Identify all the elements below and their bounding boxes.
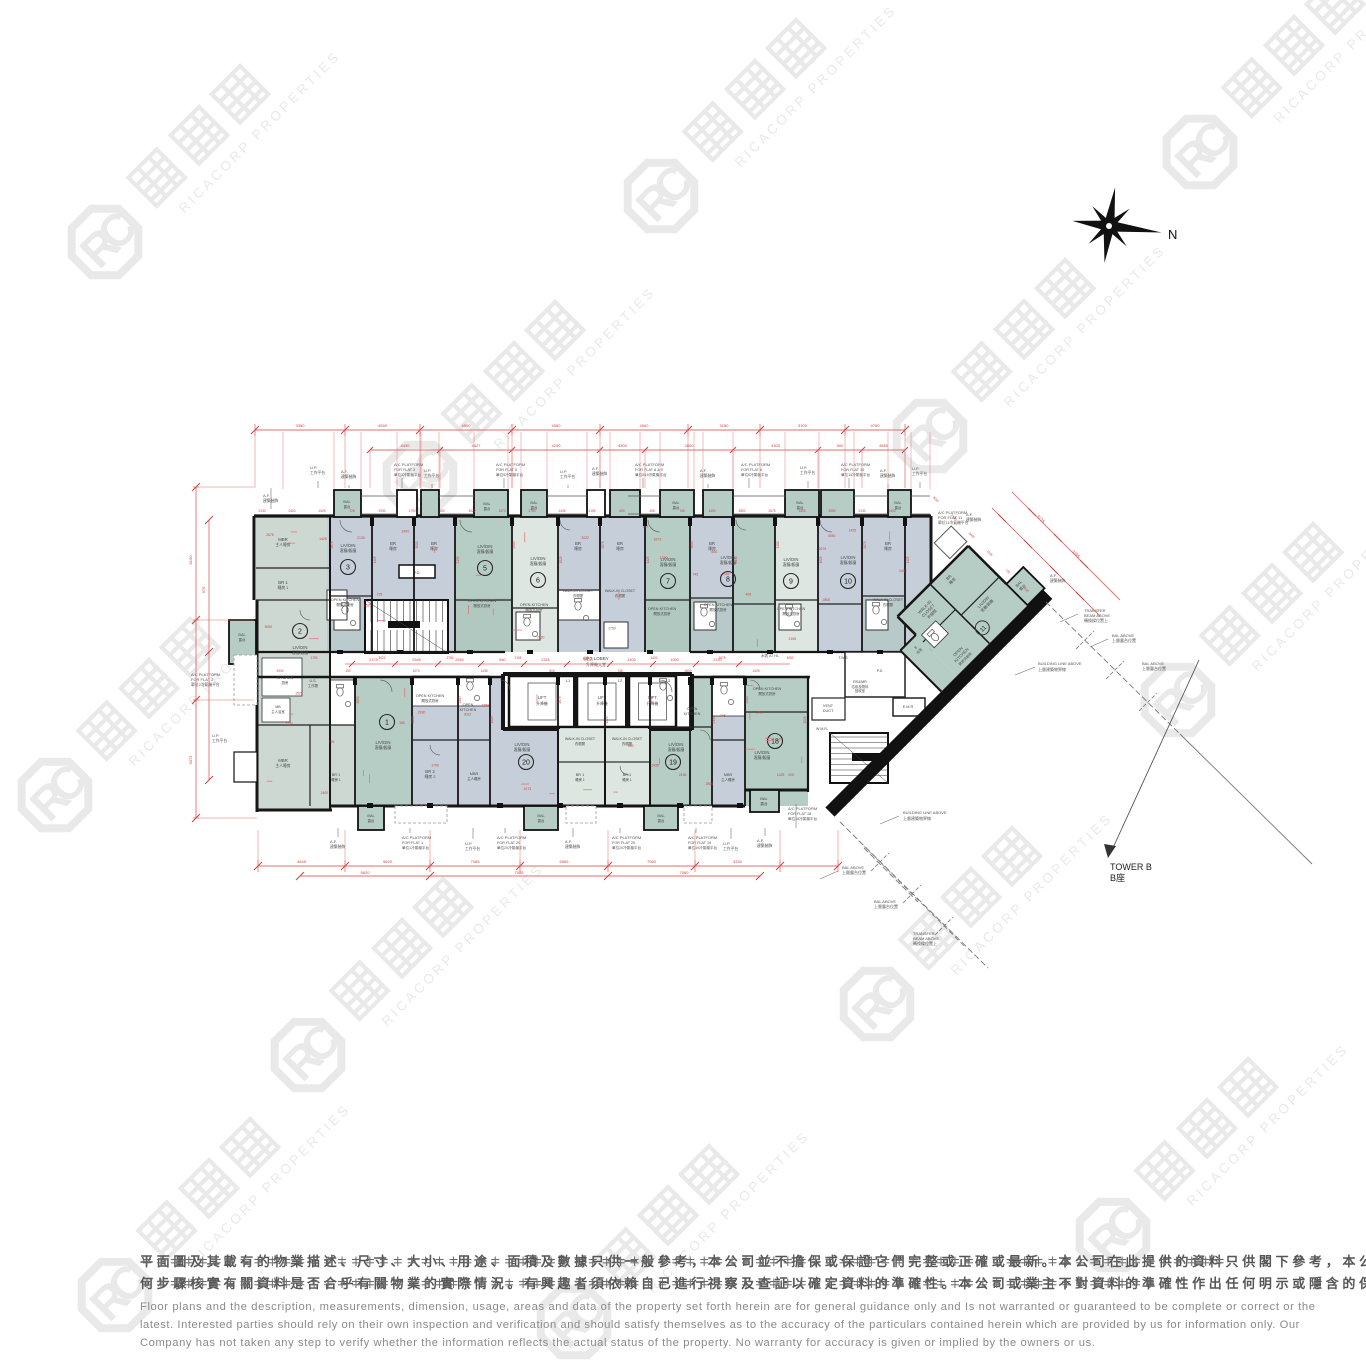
svg-text:Company has not taken any step: Company has not taken any step to verify… (140, 1337, 1095, 1349)
svg-text:2800: 2800 (685, 443, 695, 448)
svg-text:600: 600 (549, 669, 555, 673)
svg-text:A/C PLATFORM: A/C PLATFORM (612, 835, 641, 840)
svg-text:4550: 4550 (378, 423, 388, 428)
svg-text:建築裝飾: 建築裝飾 (880, 473, 895, 478)
svg-text:405: 405 (583, 656, 589, 660)
svg-text:W M.R.: W M.R. (816, 727, 828, 731)
svg-text:升降機: 升降機 (536, 701, 548, 706)
svg-text:2675: 2675 (266, 533, 274, 537)
svg-text:BAL: BAL (672, 501, 679, 505)
svg-text:3050: 3050 (415, 541, 419, 548)
svg-text:745: 745 (693, 572, 699, 576)
svg-text:2130: 2130 (286, 722, 294, 726)
svg-text:BAL: BAL (760, 796, 768, 801)
svg-text:TOWER B: TOWER B (1110, 862, 1152, 872)
svg-text:1525: 1525 (559, 556, 563, 563)
svg-text:5820: 5820 (361, 870, 371, 875)
svg-text:WALK-IN CLOSET: WALK-IN CLOSET (563, 589, 594, 593)
svg-text:A.F.: A.F. (880, 468, 887, 473)
svg-text:建築裝飾: 建築裝飾 (263, 498, 278, 503)
svg-text:上層露台位置: 上層露台位置 (1112, 637, 1136, 643)
svg-text:FOR FLAT 2: FOR FLAT 2 (191, 677, 214, 682)
svg-text:A.F.: A.F. (1050, 573, 1057, 578)
svg-text:4230: 4230 (552, 443, 562, 448)
svg-text:開放式廚房: 開放式廚房 (474, 603, 492, 608)
svg-text:1400: 1400 (627, 658, 635, 662)
svg-text:工作平台: 工作平台 (212, 738, 227, 743)
svg-text:A/C PLATFORM: A/C PLATFORM (688, 835, 717, 840)
svg-text:2800: 2800 (706, 782, 714, 786)
svg-text:2130: 2130 (357, 536, 365, 540)
svg-text:9075: 9075 (188, 755, 193, 765)
svg-text:主人睡房: 主人睡房 (275, 542, 290, 547)
svg-text:840: 840 (499, 658, 505, 662)
svg-text:工作平台: 工作平台 (310, 470, 325, 475)
svg-text:4430: 4430 (401, 443, 411, 448)
svg-text:1425: 1425 (798, 509, 805, 513)
svg-text:建築裝飾: 建築裝飾 (1050, 578, 1065, 583)
svg-text:露台: 露台 (484, 506, 491, 511)
svg-text:A.F.: A.F. (592, 466, 599, 471)
svg-text:3100: 3100 (798, 423, 808, 428)
svg-text:B座: B座 (1110, 872, 1125, 883)
svg-text:建築裝飾: 建築裝飾 (341, 474, 356, 479)
svg-text:4500: 4500 (462, 423, 472, 428)
svg-text:405: 405 (649, 509, 655, 513)
svg-text:A/C PLATFORM: A/C PLATFORM (741, 462, 770, 467)
svg-text:LIV/DIN: LIV/DIN (292, 645, 307, 650)
svg-text:客廳/飯廳: 客廳/飯廳 (477, 549, 493, 554)
svg-text:1435: 1435 (480, 669, 487, 673)
svg-text:睡房 1: 睡房 1 (331, 777, 341, 782)
svg-text:LIV/DIN: LIV/DIN (340, 543, 355, 548)
svg-text:2400: 2400 (888, 509, 895, 513)
svg-text:6: 6 (536, 578, 540, 585)
svg-text:A/C PLATFORM: A/C PLATFORM (497, 835, 526, 840)
svg-text:2675: 2675 (330, 541, 334, 548)
svg-text:FOR FLAT 18: FOR FLAT 18 (788, 812, 811, 816)
svg-text:L2: L2 (618, 678, 623, 683)
svg-text:3050: 3050 (649, 696, 653, 703)
svg-text:工作間: 工作間 (308, 683, 319, 688)
svg-text:2800: 2800 (738, 509, 745, 513)
svg-text:開放式廚房: 開放式廚房 (710, 607, 728, 612)
svg-text:單位1冷氣機平台: 單位1冷氣機平台 (402, 845, 430, 850)
svg-text:OPEN: OPEN (463, 703, 474, 707)
svg-text:600: 600 (712, 550, 718, 554)
svg-text:升降機: 升降機 (596, 701, 608, 706)
svg-text:LIV/DIN: LIV/DIN (530, 556, 545, 561)
svg-text:1425: 1425 (319, 537, 327, 541)
svg-text:725: 725 (329, 740, 335, 744)
svg-text:LIFT: LIFT (538, 695, 547, 700)
svg-text:開放式廚房: 開放式廚房 (654, 611, 672, 616)
svg-text:405: 405 (788, 773, 794, 777)
svg-text:BAL: BAL (537, 814, 544, 818)
svg-text:U.P.: U.P. (912, 466, 919, 471)
svg-text:150: 150 (439, 509, 445, 513)
svg-text:3050: 3050 (828, 509, 835, 513)
svg-text:8: 8 (726, 577, 730, 584)
svg-text:1425: 1425 (777, 773, 785, 777)
svg-text:單位20冷氣機平台: 單位20冷氣機平台 (612, 845, 642, 850)
svg-text:2675: 2675 (558, 696, 562, 703)
svg-text:LIV/DIN: LIV/DIN (783, 557, 798, 562)
svg-text:1425: 1425 (373, 556, 377, 563)
svg-text:BAL: BAL (530, 501, 537, 505)
svg-text:U.P.: U.P. (212, 733, 219, 738)
svg-text:3: 3 (346, 565, 350, 572)
svg-text:19: 19 (669, 760, 677, 767)
svg-text:2675: 2675 (863, 541, 867, 548)
svg-text:開放式廚房: 開放式廚房 (422, 698, 440, 703)
svg-text:2130: 2130 (411, 716, 415, 723)
svg-text:1073: 1073 (498, 509, 505, 513)
svg-text:工作平台: 工作平台 (465, 846, 480, 851)
svg-text:3050: 3050 (356, 696, 360, 703)
svg-text:N: N (1168, 227, 1177, 242)
svg-text:1073: 1073 (524, 787, 532, 791)
svg-text:單位20冷氣機平台: 單位20冷氣機平台 (497, 845, 527, 850)
svg-text:A.F.: A.F. (966, 512, 973, 517)
svg-text:1073: 1073 (653, 538, 661, 542)
svg-text:主人睡房: 主人睡房 (467, 776, 481, 781)
svg-text:1790: 1790 (431, 763, 439, 767)
svg-text:A.F.: A.F. (700, 468, 707, 473)
svg-text:4550: 4550 (552, 423, 562, 428)
svg-text:U.S.: U.S. (310, 679, 317, 683)
svg-text:2130: 2130 (712, 716, 716, 723)
svg-text:FOR FLAT 6: FOR FLAT 6 (741, 468, 762, 472)
svg-text:1525: 1525 (295, 691, 303, 695)
svg-text:上層露台位置: 上層露台位置 (842, 869, 866, 875)
svg-text:7: 7 (666, 579, 670, 586)
svg-text:A.F.: A.F. (330, 839, 337, 844)
svg-text:E.M.R: E.M.R (903, 705, 914, 709)
svg-text:建築裝飾: 建築裝飾 (966, 517, 981, 522)
svg-text:上層露台位置: 上層露台位置 (874, 903, 898, 909)
svg-text:2750: 2750 (446, 656, 453, 660)
svg-text:LIV/DIN: LIV/DIN (754, 750, 769, 755)
svg-text:OPEN KITCHEN: OPEN KITCHEN (520, 603, 549, 607)
svg-text:500: 500 (837, 443, 844, 448)
svg-text:5: 5 (483, 566, 487, 573)
svg-text:衣帽間: 衣帽間 (575, 741, 586, 746)
svg-text:2130: 2130 (456, 556, 460, 563)
svg-text:上層建築物界線: 上層建築物界線 (903, 815, 931, 821)
svg-text:A.F.: A.F. (341, 469, 348, 474)
svg-text:2345: 2345 (541, 658, 549, 662)
svg-text:3330: 3330 (733, 859, 743, 864)
svg-text:單位6冷氣機平台: 單位6冷氣機平台 (741, 472, 769, 477)
svg-text:2155: 2155 (788, 637, 796, 641)
svg-text:2930: 2930 (537, 635, 545, 639)
svg-text:U.P.: U.P. (800, 465, 807, 470)
svg-text:BAL: BAL (894, 501, 901, 505)
svg-text:1400: 1400 (899, 569, 907, 573)
svg-text:3022: 3022 (464, 713, 472, 717)
svg-text:LIV/DIN: LIV/DIN (514, 742, 529, 747)
svg-text:客廳/飯廳: 客廳/飯廳 (840, 560, 856, 565)
svg-text:露台: 露台 (760, 801, 768, 806)
svg-text:睡房 2: 睡房 2 (425, 774, 436, 779)
svg-text:975: 975 (201, 586, 206, 593)
svg-text:BAL: BAL (343, 500, 350, 504)
svg-text:FOR FLAT 20: FOR FLAT 20 (612, 841, 635, 845)
svg-text:單位18冷氣機平台: 單位18冷氣機平台 (788, 816, 818, 821)
svg-text:2675: 2675 (768, 509, 775, 513)
svg-text:客廳/飯廳: 客廳/飯廳 (514, 747, 530, 752)
svg-text:1525: 1525 (318, 509, 325, 513)
svg-text:150: 150 (345, 669, 351, 673)
svg-text:工作平台: 工作平台 (912, 471, 927, 476)
svg-text:2400: 2400 (512, 541, 516, 548)
svg-text:2400: 2400 (745, 696, 749, 703)
svg-text:A/C PLATFORM: A/C PLATFORM (788, 806, 817, 811)
svg-text:1425: 1425 (752, 669, 759, 673)
svg-text:FOR FLAT 5: FOR FLAT 5 (496, 468, 517, 472)
svg-text:LIV/DIN: LIV/DIN (375, 740, 390, 745)
svg-text:FOR FLAT 19: FOR FLAT 19 (688, 841, 711, 845)
svg-text:BR: BR (431, 541, 437, 546)
svg-text:A.F.: A.F. (757, 838, 764, 843)
svg-text:1073: 1073 (412, 669, 419, 673)
svg-text:4500: 4500 (640, 423, 650, 428)
svg-text:7085: 7085 (515, 870, 525, 875)
svg-text:VENT: VENT (823, 704, 834, 708)
svg-text:1425: 1425 (605, 716, 609, 723)
svg-text:1: 1 (385, 720, 389, 727)
svg-text:轉換樑位置上: 轉換樑位置上 (1084, 617, 1108, 623)
svg-text:4427: 4427 (472, 443, 482, 448)
svg-text:150: 150 (399, 721, 405, 725)
svg-text:BUILDING LINE ABOVE: BUILDING LINE ABOVE (1038, 661, 1082, 666)
svg-text:WALK-IN CLOSET: WALK-IN CLOSET (565, 737, 596, 741)
svg-text:BUILDING LINE ABOVE: BUILDING LINE ABOVE (903, 810, 947, 815)
svg-text:工作平台: 工作平台 (723, 846, 738, 851)
svg-text:主人睡房: 主人睡房 (275, 763, 290, 768)
svg-text:1525: 1525 (803, 716, 807, 723)
svg-text:衣帽間: 衣帽間 (883, 602, 894, 607)
svg-text:工作平台: 工作平台 (800, 470, 815, 475)
svg-text:725: 725 (349, 509, 355, 513)
svg-text:BR 1: BR 1 (278, 580, 288, 585)
svg-text:BR: BR (709, 541, 715, 546)
svg-text:FOR FLAT 20: FOR FLAT 20 (497, 841, 520, 845)
svg-text:A/C PLATFORM: A/C PLATFORM (841, 462, 870, 467)
svg-text:露台: 露台 (658, 818, 665, 823)
svg-text:OPEN KITCHEN: OPEN KITCHEN (753, 687, 782, 691)
svg-text:2400: 2400 (401, 530, 409, 534)
svg-text:KITCHEN: KITCHEN (460, 708, 477, 712)
svg-text:A/C PLATFORM: A/C PLATFORM (402, 835, 431, 840)
svg-text:建築裝飾: 建築裝飾 (700, 473, 715, 478)
svg-text:客廳/飯廳: 客廳/飯廳 (783, 562, 799, 567)
svg-text:U.P.: U.P. (723, 841, 730, 846)
svg-text:1790: 1790 (310, 656, 317, 660)
svg-text:BAL: BAL (367, 814, 374, 818)
svg-text:T.W.S: T.W.S (838, 656, 848, 660)
svg-text:BR: BR (885, 541, 891, 546)
svg-text:客廳/飯廳: 客廳/飯廳 (530, 561, 546, 566)
svg-text:2800: 2800 (823, 598, 831, 602)
svg-text:2940: 2940 (455, 658, 463, 662)
svg-text:3022: 3022 (468, 509, 475, 513)
svg-text:2675: 2675 (718, 656, 725, 660)
svg-text:建築裝飾: 建築裝飾 (757, 843, 772, 848)
svg-text:露台: 露台 (895, 505, 902, 510)
svg-text:建築裝飾: 建築裝飾 (330, 844, 345, 849)
svg-text:轉換樑位置上: 轉換樑位置上 (913, 940, 937, 946)
svg-text:主人浴室: 主人浴室 (271, 709, 285, 714)
svg-text:露台: 露台 (368, 818, 375, 823)
svg-text:2675: 2675 (601, 541, 605, 548)
svg-text:L1: L1 (566, 678, 571, 683)
svg-text:單位5冷氣機平台: 單位5冷氣機平台 (496, 472, 524, 477)
svg-text:LIV/DIN: LIV/DIN (840, 555, 855, 560)
svg-text:FOR FLAT 1: FOR FLAT 1 (402, 841, 423, 845)
svg-text:工作平台: 工作平台 (560, 474, 575, 479)
svg-text:U.P.: U.P. (465, 841, 472, 846)
svg-text:主人睡房: 主人睡房 (721, 777, 735, 782)
svg-text:廚房: 廚房 (282, 680, 289, 685)
svg-text:A.F.: A.F. (263, 493, 270, 498)
svg-text:latest. Interested parties sho: latest. Interested parties should rely o… (140, 1319, 1300, 1331)
svg-text:2179: 2179 (369, 658, 377, 662)
svg-text:客廳/飯廳: 客廳/飯廳 (668, 747, 684, 752)
svg-text:回收室: 回收室 (855, 688, 866, 693)
svg-text:BAL: BAL (657, 814, 664, 818)
svg-text:上層建築物界線: 上層建築物界線 (1038, 666, 1066, 672)
svg-text:建築裝飾: 建築裝飾 (592, 471, 607, 476)
svg-text:U.P.: U.P. (310, 465, 317, 470)
svg-text:1050: 1050 (670, 658, 678, 662)
svg-text:4645: 4645 (297, 859, 307, 864)
svg-text:1400: 1400 (650, 656, 657, 660)
svg-text:745: 745 (679, 509, 685, 513)
svg-text:單位10冷氣機平台: 單位10冷氣機平台 (841, 472, 871, 477)
svg-text:開放式廚房: 開放式廚房 (526, 607, 544, 612)
svg-text:2400: 2400 (776, 541, 780, 548)
svg-text:OPEN KITCHEN: OPEN KITCHEN (468, 599, 497, 603)
svg-text:2400: 2400 (288, 509, 295, 513)
svg-text:A/C PLATFORM: A/C PLATFORM (394, 462, 423, 467)
svg-text:BR 1: BR 1 (576, 773, 584, 777)
svg-text:10: 10 (844, 579, 852, 586)
svg-text:睡房: 睡房 (430, 546, 438, 551)
svg-text:2155: 2155 (588, 509, 595, 513)
svg-text:單位3冷氣機平台: 單位3冷氣機平台 (394, 472, 422, 477)
svg-text:600: 600 (619, 509, 625, 513)
svg-text:平面圖及其載有的物業描述、尺寸、大小、用途、面積及數據只供一: 平面圖及其載有的物業描述、尺寸、大小、用途、面積及數據只供一般參考，本公司並不擔… (140, 1254, 1366, 1269)
svg-text:開放式廚房: 開放式廚房 (759, 691, 777, 696)
svg-text:OPEN KITCHEN: OPEN KITCHEN (331, 598, 360, 602)
svg-text:2155: 2155 (514, 656, 521, 660)
svg-text:2400: 2400 (321, 791, 329, 795)
svg-text:Floor plans and the descriptio: Floor plans and the description, measure… (140, 1301, 1316, 1313)
svg-text:WALK-IN CLOSET: WALK-IN CLOSET (605, 589, 636, 593)
svg-text:BR 2: BR 2 (425, 769, 435, 774)
svg-text:BAL: BAL (238, 633, 245, 637)
svg-text:單位19冷氣機平台: 單位19冷氣機平台 (688, 845, 718, 850)
svg-text:3050: 3050 (690, 541, 694, 548)
svg-text:6965: 6965 (560, 859, 570, 864)
svg-text:KITCHEN: KITCHEN (684, 712, 701, 716)
svg-text:1400: 1400 (708, 509, 715, 513)
svg-text:BR: BR (575, 541, 581, 546)
svg-text:3022: 3022 (378, 656, 385, 660)
svg-text:2155: 2155 (679, 773, 687, 777)
svg-text:BR: BR (390, 541, 396, 546)
svg-text:BAL: BAL (796, 501, 803, 505)
svg-text:2130: 2130 (258, 509, 265, 513)
svg-text:睡房 1: 睡房 1 (278, 585, 289, 590)
svg-text:衣帽間: 衣帽間 (615, 593, 626, 598)
svg-text:2750: 2750 (482, 704, 490, 708)
svg-text:1425: 1425 (849, 528, 857, 532)
svg-text:1790: 1790 (408, 509, 415, 513)
svg-text:睡房: 睡房 (884, 546, 892, 551)
svg-text:睡房: 睡房 (574, 546, 582, 551)
svg-text:建築裝飾: 建築裝飾 (565, 844, 580, 849)
svg-text:U.P.: U.P. (560, 469, 567, 474)
svg-text:MBR: MBR (278, 537, 288, 542)
svg-text:5620: 5620 (383, 859, 393, 864)
svg-text:工作平台: 工作平台 (424, 473, 439, 478)
svg-text:露台: 露台 (538, 818, 545, 823)
svg-text:2750: 2750 (608, 627, 616, 631)
svg-text:2400: 2400 (458, 696, 462, 703)
svg-text:OPEN: OPEN (687, 707, 698, 711)
svg-text:單位2冷氣機平台: 單位2冷氣機平台 (191, 682, 220, 687)
svg-text:客廳/飯廳: 客廳/飯廳 (340, 548, 356, 553)
svg-text:RS&MR: RS&MR (853, 680, 867, 684)
svg-text:露台: 露台 (239, 637, 246, 642)
svg-text:A.F.: A.F. (565, 839, 572, 844)
svg-text:1525: 1525 (364, 604, 372, 608)
svg-text:1425: 1425 (646, 556, 650, 563)
svg-text:衣帽間: 衣帽間 (573, 593, 584, 598)
svg-text:OPEN KITCHEN: OPEN KITCHEN (704, 603, 733, 607)
svg-text:MBR: MBR (724, 773, 733, 777)
svg-text:2130: 2130 (734, 556, 738, 563)
svg-text:何步驟核實有關資料是否合乎有關物業的實際情況。有興趣者須依賴: 何步驟核實有關資料是否合乎有關物業的實際情況。有興趣者須依賴自己進行視察及查証以… (140, 1276, 1366, 1291)
svg-text:睡房 1: 睡房 1 (622, 777, 632, 782)
svg-text:U.P.: U.P. (424, 468, 431, 473)
svg-text:DUCT: DUCT (823, 709, 834, 713)
svg-text:3050: 3050 (264, 625, 272, 629)
svg-text:OPEN KITCHEN: OPEN KITCHEN (416, 694, 445, 698)
svg-text:2930: 2930 (378, 509, 385, 513)
svg-text:7085: 7085 (471, 859, 481, 864)
svg-text:WALK-IN CLOSET: WALK-IN CLOSET (612, 737, 643, 741)
svg-text:1525: 1525 (490, 716, 494, 723)
svg-text:20: 20 (522, 760, 530, 767)
svg-text:上層露台位置: 上層露台位置 (1142, 665, 1166, 671)
svg-text:4300: 4300 (618, 443, 628, 448)
svg-text:3050: 3050 (828, 534, 836, 538)
svg-text:客廳/飯廳: 客廳/飯廳 (754, 755, 770, 760)
svg-text:FOR FLAT 10: FOR FLAT 10 (841, 468, 864, 472)
svg-text:3350: 3350 (296, 423, 306, 428)
svg-text:BAL: BAL (483, 502, 490, 506)
svg-text:LIV/DIN: LIV/DIN (668, 742, 683, 747)
svg-text:BR 1: BR 1 (332, 773, 340, 777)
svg-text:睡房: 睡房 (389, 546, 397, 551)
svg-text:4580: 4580 (879, 443, 889, 448)
svg-text:1435: 1435 (651, 763, 659, 767)
svg-text:BR: BR (617, 541, 623, 546)
